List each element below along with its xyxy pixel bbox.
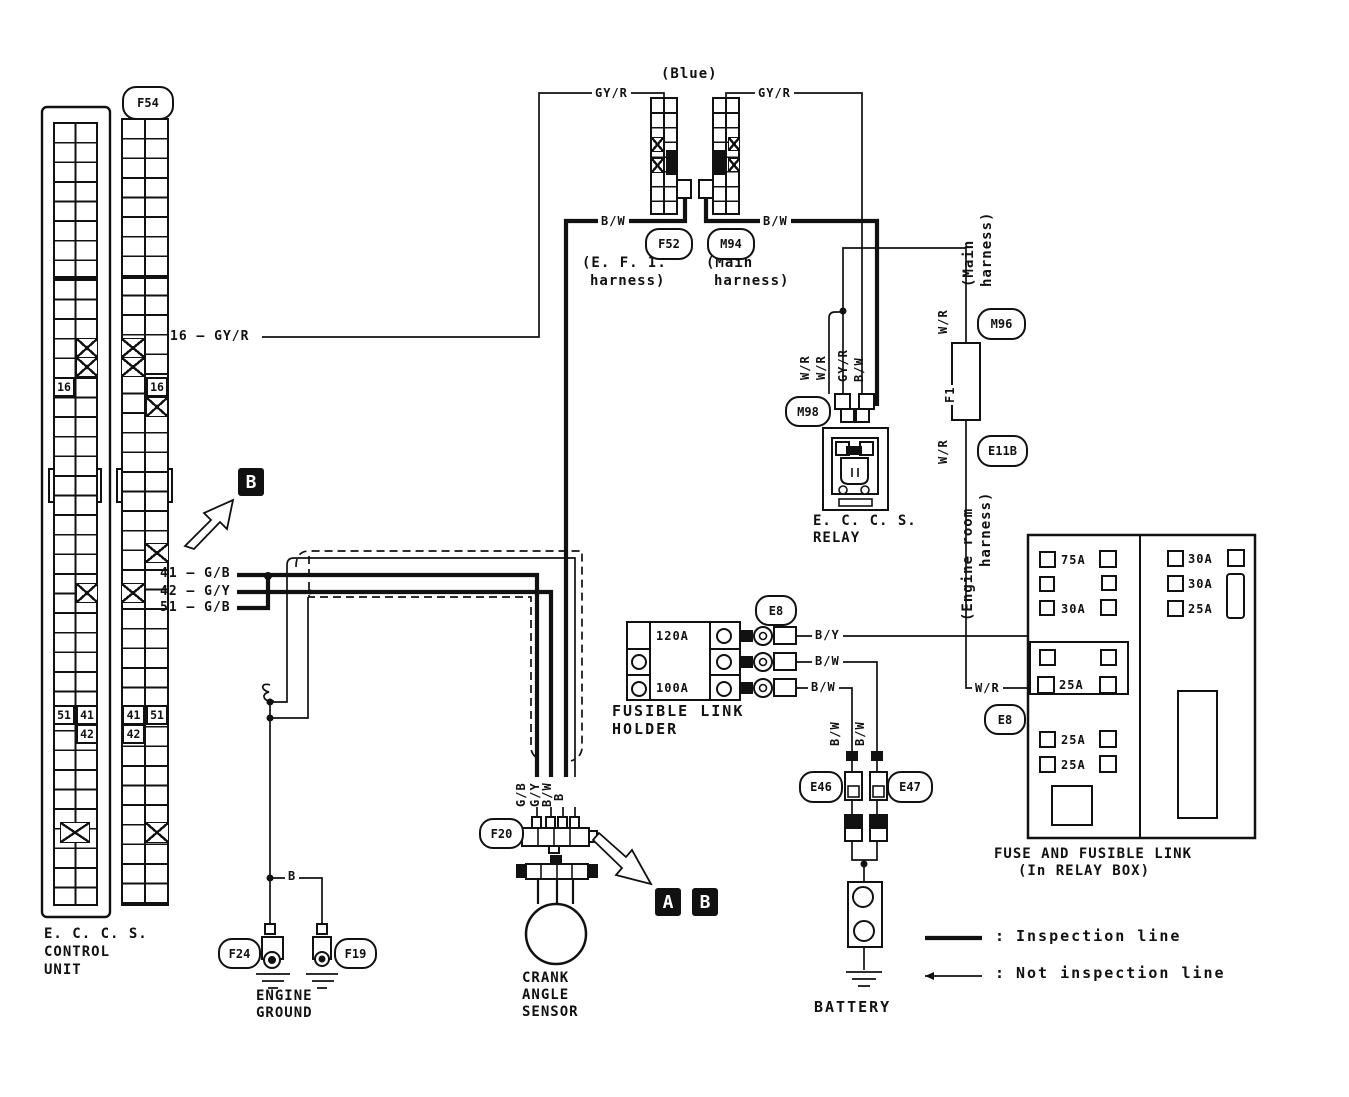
fuse-30a: 30A (1059, 602, 1088, 616)
connector-id-f19: F19 (334, 938, 377, 969)
marker-a: A (655, 888, 681, 916)
fuse-25a: 25A (1186, 602, 1215, 616)
fuse-label-120a: 120A (654, 629, 691, 643)
wr-label-e11b: W/R (936, 439, 951, 464)
wire-label-bw1: B/W (812, 654, 843, 669)
wiring-diagram: 16 16 51 41 42 41 51 42 F54 F52 M94 M96 … (0, 0, 1349, 1097)
engine-room-harness-line1: (Engine room (961, 508, 976, 621)
wire-label-gyr-left: GY/R (592, 86, 631, 101)
main-harness-line2: harness) (714, 274, 789, 289)
engine-ground-line1: ENGINE (256, 989, 313, 1004)
wire-label-bw2: B/W (808, 680, 839, 695)
connector-id-e11b: E11B (977, 435, 1028, 467)
fuse-30a: 30A (1186, 552, 1215, 566)
connector-id-e8-flh: E8 (755, 595, 797, 626)
engine-room-harness-line2: harness) (979, 492, 994, 567)
fuse-label-100a: 100A (654, 681, 691, 695)
marker-b-top: B (238, 468, 264, 496)
relay-wire-wr2: W/R (814, 355, 829, 380)
battery-wire-bw1: B/W (828, 719, 843, 748)
text-layer: F54 F52 M94 M96 E11B M98 E8 E8 E46 E47 F… (0, 0, 1349, 1097)
wire-label-bw-right: B/W (760, 214, 791, 229)
cas-title-line1: CRANK (522, 971, 569, 986)
legend-not-inspection: Not inspection line (1016, 966, 1226, 981)
wire-label-16-gyr: 16 — GY/R (170, 329, 249, 344)
connector-id-m94: M94 (707, 228, 755, 260)
connector-id-f20: F20 (479, 818, 524, 849)
legend-colon2: : (995, 966, 1006, 981)
fuse-75a: 75A (1059, 553, 1088, 567)
ecu-title-line1: E. C. C. S. (44, 927, 148, 942)
connector-id-e46: E46 (799, 771, 843, 803)
relay-wire-wr1: W/R (798, 355, 813, 380)
flh-title-line1: FUSIBLE LINK (612, 704, 744, 719)
cas-title-line2: ANGLE (522, 988, 569, 1003)
fuse-25a: 25A (1059, 733, 1088, 747)
main-harness-vert-line2: harness) (980, 212, 995, 287)
connector-id-m98: M98 (785, 396, 831, 427)
wire-label-bw-left: B/W (598, 214, 629, 229)
connector-id-f24: F24 (218, 938, 261, 969)
efi-harness-line2: harness) (590, 274, 665, 289)
battery-wire-bw2: B/W (853, 719, 868, 748)
blue-label: (Blue) (661, 67, 718, 82)
relay-wire-gyr: GY/R (836, 349, 851, 382)
fusebox-title-line1: FUSE AND FUSIBLE LINK (994, 847, 1192, 862)
wire-label-51-gb: 51 — G/B (160, 600, 231, 615)
f1-label: F1 (943, 385, 958, 405)
fusebox-title-line2: (In RELAY BOX) (1018, 864, 1150, 879)
marker-b: B (692, 888, 718, 916)
wire-label-by: B/Y (812, 628, 843, 643)
engine-ground-line2: GROUND (256, 1006, 313, 1021)
connector-id-e47: E47 (887, 771, 933, 803)
fuse-25a: 25A (1057, 678, 1086, 692)
fuse-25a: 25A (1059, 758, 1088, 772)
cas-wire-b: B (552, 793, 567, 801)
wire-label-gyr-right: GY/R (755, 86, 794, 101)
wire-label-42-gy: 42 — G/Y (160, 584, 231, 599)
cas-title-line3: SENSOR (522, 1005, 579, 1020)
relay-title-line2: RELAY (813, 531, 860, 546)
cas-wire-gb: G/B (514, 782, 529, 807)
wire-label-41-gb: 41 — G/B (160, 566, 231, 581)
fuse-30a: 30A (1186, 577, 1215, 591)
flh-title-line2: HOLDER (612, 722, 678, 737)
wr-label-fusebox: W/R (972, 681, 1003, 696)
wire-label-b: B (285, 869, 299, 884)
ecu-title-line3: UNIT (44, 963, 82, 978)
legend-inspection: Inspection line (1016, 929, 1181, 944)
relay-title-line1: E. C. C. S. (813, 514, 917, 529)
connector-id-f52: F52 (645, 228, 693, 260)
wr-label-m96: W/R (936, 309, 951, 334)
relay-wire-bw: B/W (852, 357, 867, 382)
connector-id-m96: M96 (977, 308, 1026, 340)
ecu-title-line2: CONTROL (44, 945, 110, 960)
legend-colon1: : (995, 929, 1006, 944)
battery-label: BATTERY (814, 1000, 891, 1015)
main-harness-vert-line1: (Main (962, 240, 977, 287)
connector-id-e8-fusebox: E8 (984, 704, 1026, 735)
connector-id-f54: F54 (122, 86, 174, 120)
